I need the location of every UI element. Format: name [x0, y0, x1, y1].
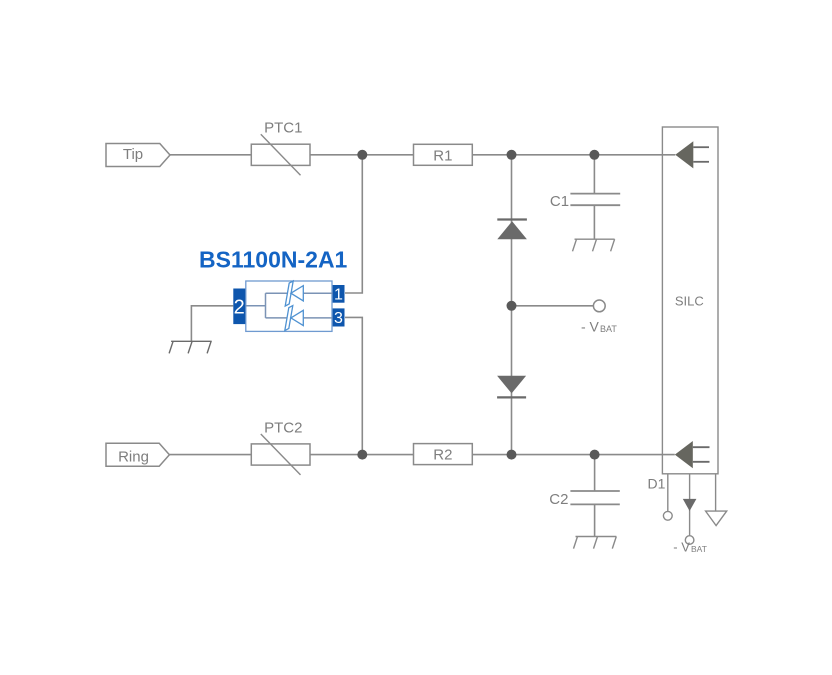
svg-text:C1: C1 [550, 193, 569, 210]
svg-text:PTC2: PTC2 [264, 419, 302, 436]
svg-text:BS1100N-2A1: BS1100N-2A1 [199, 247, 348, 273]
svg-text:Tip: Tip [123, 146, 143, 163]
svg-text:R1: R1 [433, 147, 452, 164]
svg-text:D1: D1 [648, 475, 666, 491]
svg-text:1: 1 [334, 287, 343, 304]
svg-text:R2: R2 [433, 447, 452, 464]
svg-text:2: 2 [234, 296, 245, 318]
svg-text:C2: C2 [549, 491, 568, 508]
svg-text:BAT: BAT [600, 324, 617, 334]
svg-text:Ring: Ring [118, 449, 149, 466]
svg-text:PTC1: PTC1 [264, 120, 302, 137]
svg-text:SILC: SILC [675, 294, 704, 309]
svg-text:- V: - V [581, 319, 600, 335]
svg-text:BAT: BAT [691, 544, 707, 554]
svg-text:- V: - V [673, 539, 690, 554]
svg-text:3: 3 [334, 310, 343, 327]
